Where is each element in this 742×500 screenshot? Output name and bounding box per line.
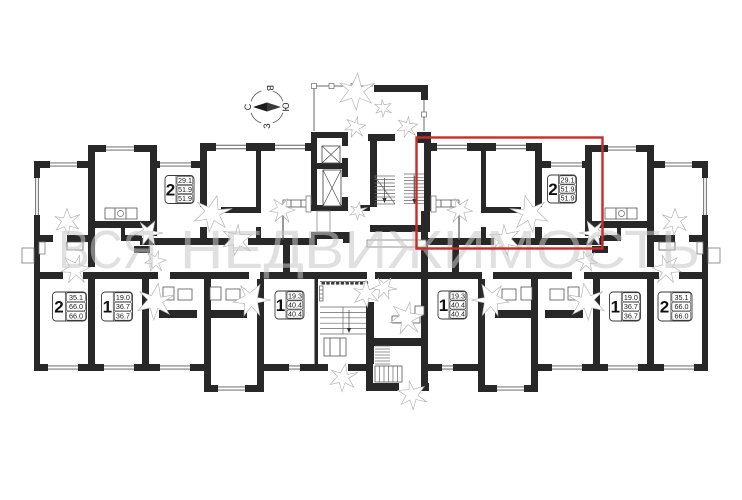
svg-text:Ю: Ю — [281, 102, 291, 111]
svg-text:2: 2 — [54, 298, 63, 317]
svg-text:36.7: 36.7 — [624, 302, 638, 311]
svg-text:1: 1 — [103, 298, 112, 317]
svg-text:19.3: 19.3 — [451, 292, 465, 301]
svg-text:2: 2 — [548, 180, 557, 199]
svg-text:1: 1 — [611, 298, 620, 317]
svg-text:35.1: 35.1 — [69, 293, 83, 302]
svg-text:1: 1 — [276, 296, 285, 315]
svg-text:36.7: 36.7 — [116, 312, 130, 321]
svg-text:С: С — [243, 103, 253, 110]
svg-text:51.9: 51.9 — [178, 185, 192, 194]
svg-text:ВСЯ: ВСЯ — [58, 220, 157, 280]
svg-text:40.4: 40.4 — [451, 301, 465, 310]
svg-text:З: З — [262, 123, 272, 128]
svg-text:2: 2 — [166, 180, 175, 199]
svg-text:66.0: 66.0 — [69, 302, 83, 311]
svg-text:66.0: 66.0 — [675, 302, 689, 311]
svg-text:66.0: 66.0 — [69, 312, 83, 321]
svg-text:19.0: 19.0 — [116, 293, 130, 302]
svg-text:В: В — [265, 85, 275, 91]
svg-text:40.4: 40.4 — [451, 310, 465, 319]
svg-text:НЕДВИЖИМОСТЬ: НЕДВИЖИМОСТЬ — [180, 220, 700, 280]
svg-text:19.3: 19.3 — [288, 292, 302, 301]
svg-text:51.9: 51.9 — [561, 194, 575, 203]
svg-text:2: 2 — [660, 298, 669, 317]
svg-text:35.1: 35.1 — [675, 293, 689, 302]
svg-text:29.1: 29.1 — [178, 176, 192, 185]
svg-text:51.9: 51.9 — [561, 185, 575, 194]
svg-text:36.7: 36.7 — [116, 302, 130, 311]
svg-text:66.0: 66.0 — [675, 312, 689, 321]
svg-text:36.7: 36.7 — [624, 312, 638, 321]
svg-text:1: 1 — [439, 296, 448, 315]
svg-text:19.0: 19.0 — [624, 293, 638, 302]
svg-text:40.4: 40.4 — [288, 301, 302, 310]
svg-text:40.4: 40.4 — [288, 310, 302, 319]
svg-text:51.9: 51.9 — [178, 194, 192, 203]
svg-text:29.1: 29.1 — [561, 176, 575, 185]
